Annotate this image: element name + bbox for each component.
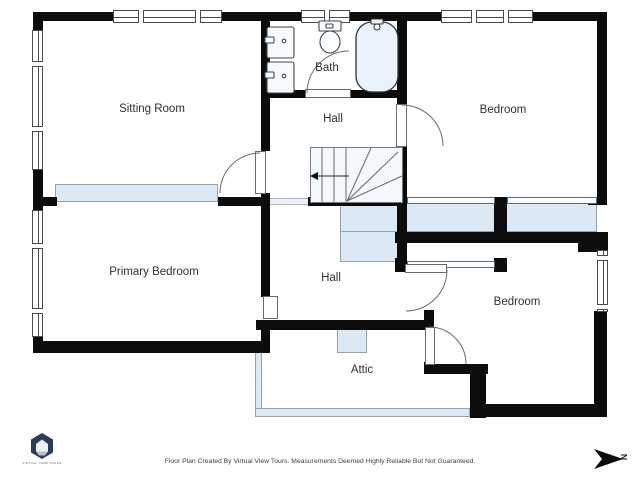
toilet-icon	[319, 21, 341, 53]
room-label-bath: Bath	[315, 62, 339, 74]
stair-treads	[318, 148, 402, 202]
room-label-bedroom-upper: Bedroom	[480, 104, 527, 116]
room-label-attic: Attic	[351, 364, 373, 376]
floor-plan: Sitting Room Bath Hall Bedroom Primary B…	[0, 0, 640, 480]
disclaimer-text: Floor Plan Created By Virtual View Tours…	[0, 458, 640, 465]
room-label-hall-lower: Hall	[321, 272, 341, 284]
room-label-primary-bedroom: Primary Bedroom	[109, 266, 198, 278]
bathtub-icon	[356, 19, 398, 92]
room-label-hall-upper: Hall	[323, 113, 343, 125]
company-logo-icon	[31, 433, 53, 459]
stair-direction-arrow	[310, 172, 318, 180]
door-swing-arcs	[220, 51, 466, 364]
sink-icon	[265, 27, 294, 93]
room-label-sitting-room: Sitting Room	[119, 103, 185, 115]
room-label-bedroom-lower: Bedroom	[494, 296, 541, 308]
